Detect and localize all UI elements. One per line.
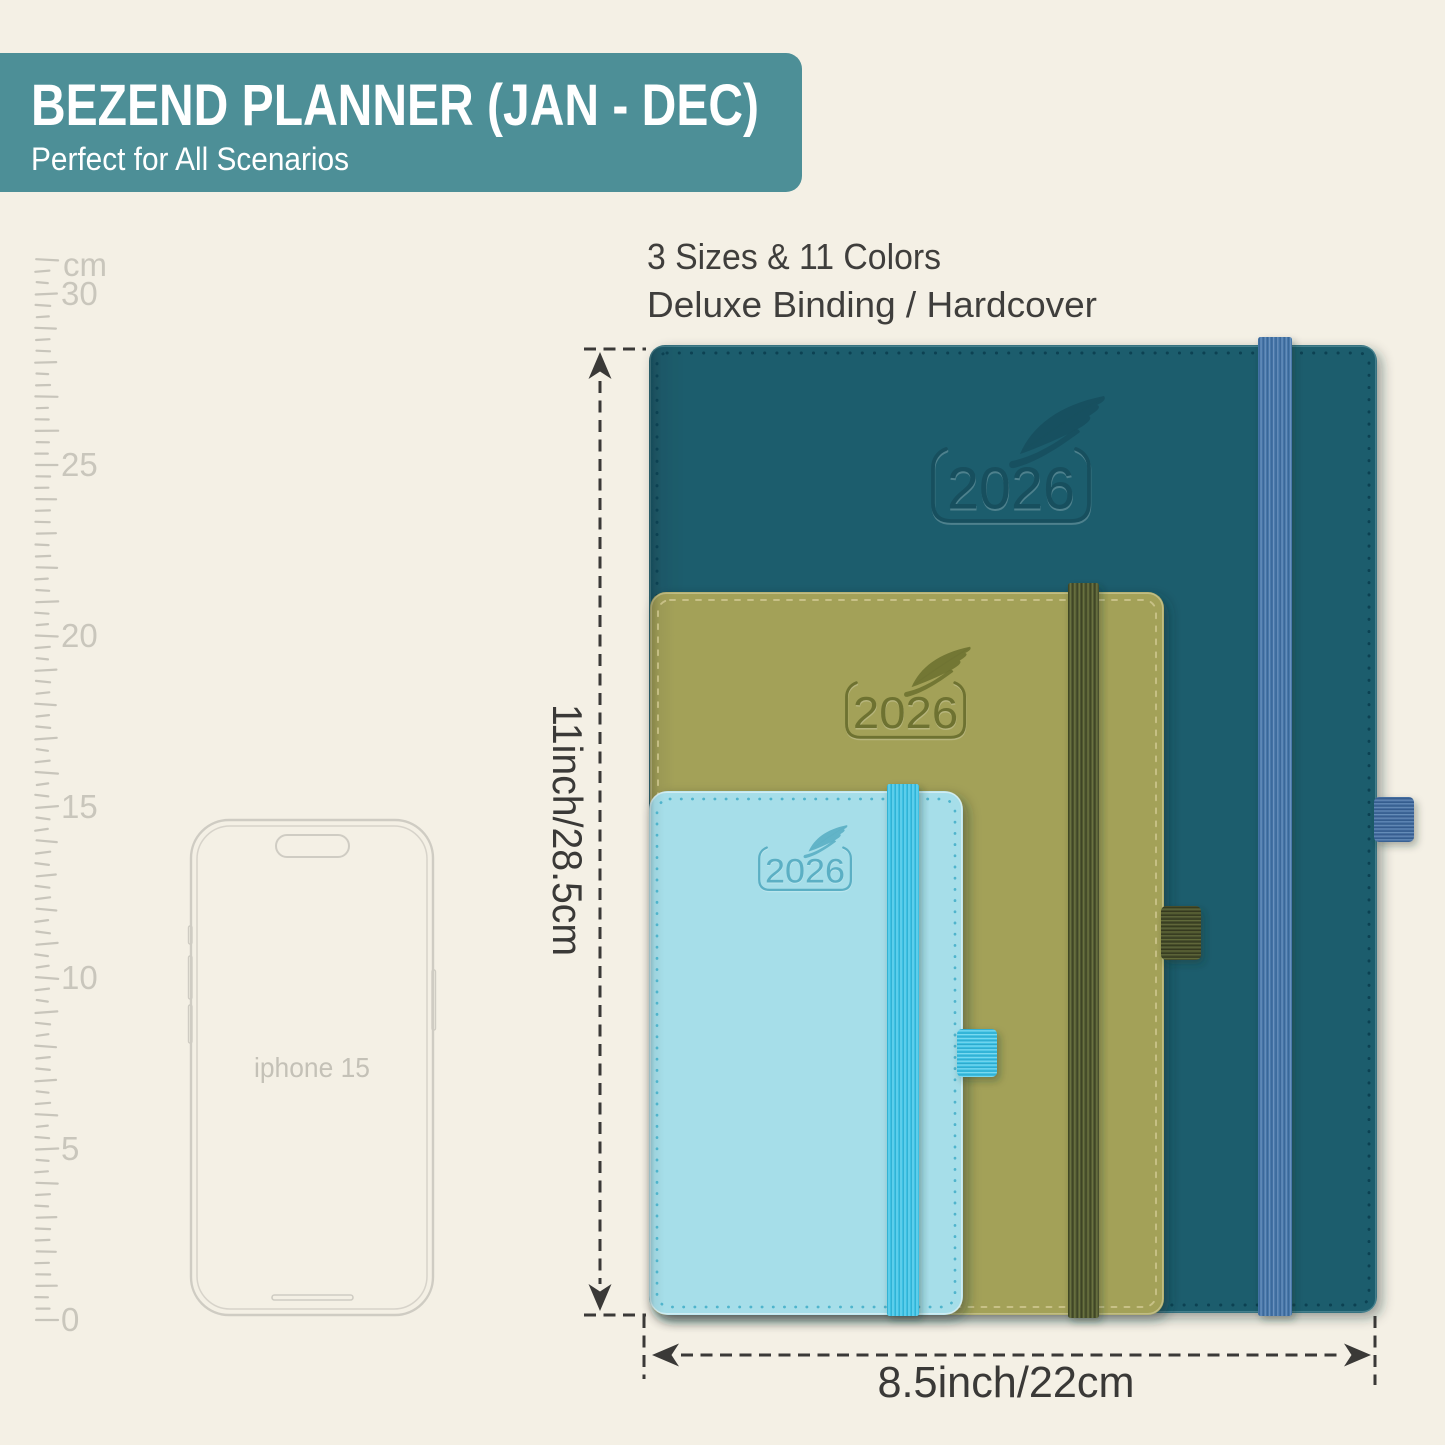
svg-text:11inch/28.5cm: 11inch/28.5cm [544, 704, 591, 956]
svg-text:Deluxe Binding / Hardcover: Deluxe Binding / Hardcover [647, 284, 1097, 325]
svg-text:BEZEND PLANNER (JAN - DEC): BEZEND PLANNER (JAN - DEC) [31, 73, 759, 138]
svg-text:Perfect for All Scenarios: Perfect for All Scenarios [31, 141, 349, 177]
svg-text:10: 10 [61, 959, 98, 996]
svg-text:30: 30 [61, 275, 98, 312]
svg-text:iphone 15: iphone 15 [254, 1052, 370, 1083]
svg-text:5: 5 [61, 1130, 79, 1167]
svg-text:25: 25 [61, 446, 98, 483]
svg-text:0: 0 [61, 1301, 79, 1338]
svg-text:15: 15 [61, 788, 98, 825]
svg-text:3 Sizes & 11 Colors: 3 Sizes & 11 Colors [647, 236, 941, 277]
svg-text:8.5inch/22cm: 8.5inch/22cm [878, 1358, 1135, 1407]
svg-text:2026: 2026 [765, 853, 845, 891]
svg-text:20: 20 [61, 617, 98, 654]
